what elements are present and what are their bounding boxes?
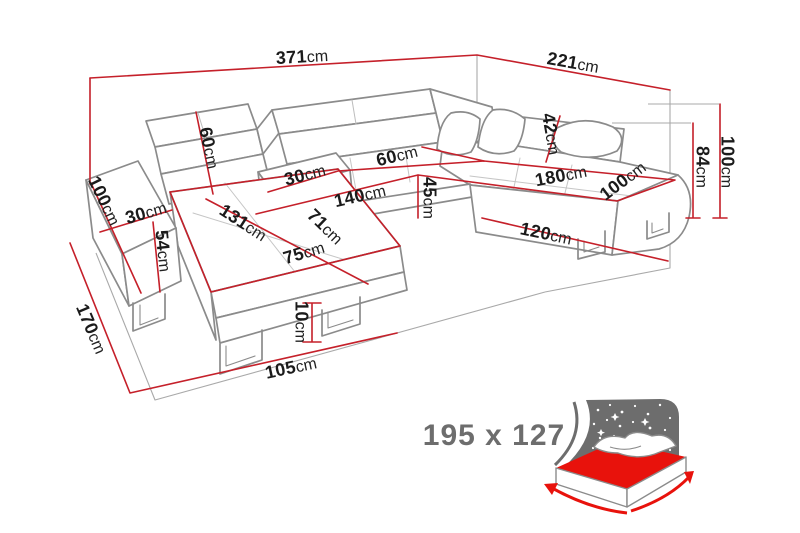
dim-label-100-height: 100cm — [718, 136, 737, 188]
sleeping-function-icon — [544, 399, 694, 513]
sofa-dimension-diagram: 371cm 221cm 60cm 100cm 30cm 54cm 170cm 1… — [0, 0, 800, 533]
dim-label-371: 371cm — [275, 46, 328, 68]
dim-label-45: 45cm — [420, 177, 439, 219]
dim-label-84: 84cm — [693, 146, 712, 188]
sleeping-size-label: 195 x 127 — [423, 419, 565, 453]
bed-icon — [544, 432, 694, 513]
dim-label-10: 10cm — [292, 301, 311, 343]
dim-label-54: 54cm — [151, 229, 174, 273]
diagram-canvas — [0, 0, 800, 533]
